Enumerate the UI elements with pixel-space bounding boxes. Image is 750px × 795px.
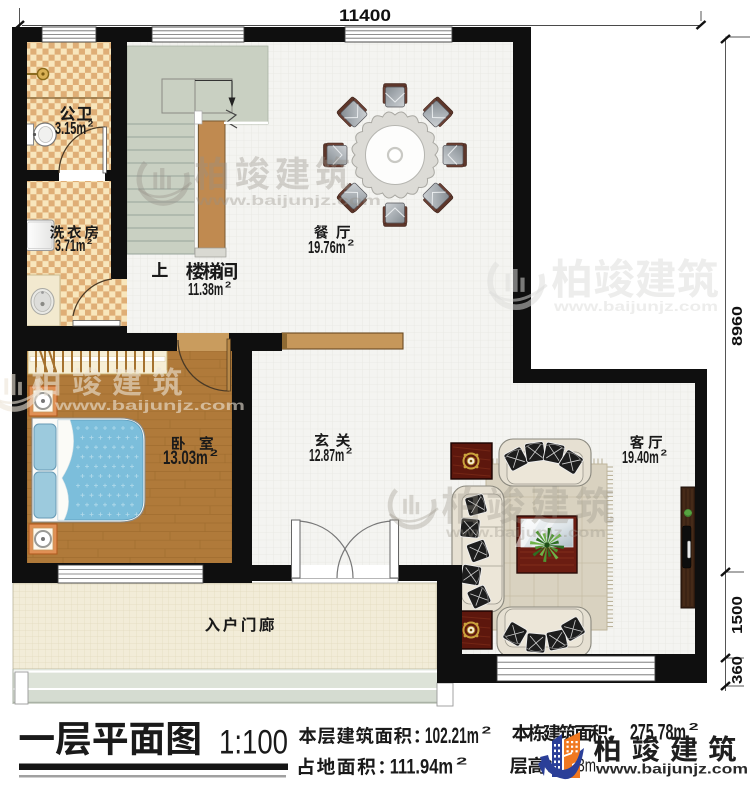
svg-text:11400: 11400 bbox=[339, 7, 391, 25]
svg-text:www.baijunjz.com: www.baijunjz.com bbox=[194, 193, 381, 208]
svg-text:12.87m: 12.87m bbox=[309, 445, 344, 465]
svg-text:8960: 8960 bbox=[729, 306, 746, 346]
svg-text:www.baijunjz.com: www.baijunjz.com bbox=[595, 762, 748, 777]
svg-text:www.baijunjz.com: www.baijunjz.com bbox=[445, 525, 606, 540]
svg-text:2: 2 bbox=[348, 238, 355, 248]
svg-text:19.40m: 19.40m bbox=[622, 447, 659, 467]
svg-text:102.21m: 102.21m bbox=[425, 723, 479, 748]
svg-text:360: 360 bbox=[729, 656, 746, 684]
svg-text:2: 2 bbox=[482, 726, 492, 737]
svg-text:19.76m: 19.76m bbox=[308, 237, 346, 257]
svg-text:2: 2 bbox=[661, 448, 668, 458]
svg-text:13.03m: 13.03m bbox=[163, 448, 208, 469]
svg-text:11.38m: 11.38m bbox=[188, 279, 223, 299]
svg-text:1500: 1500 bbox=[729, 596, 746, 634]
svg-text:111.94m: 111.94m bbox=[390, 755, 453, 779]
svg-text:2: 2 bbox=[210, 448, 218, 458]
svg-text:2: 2 bbox=[456, 757, 468, 768]
svg-text:1:100: 1:100 bbox=[219, 724, 288, 762]
svg-text:2: 2 bbox=[88, 119, 94, 129]
svg-text:2: 2 bbox=[225, 280, 232, 290]
svg-text:www.baijunjz.com: www.baijunjz.com bbox=[53, 398, 245, 413]
svg-text:2: 2 bbox=[689, 722, 699, 733]
svg-text:3.71m: 3.71m bbox=[55, 237, 85, 255]
svg-text:www.baijunjz.com: www.baijunjz.com bbox=[553, 299, 718, 314]
svg-text:2: 2 bbox=[87, 237, 92, 246]
svg-text:3.15m: 3.15m bbox=[55, 118, 86, 138]
svg-text:2: 2 bbox=[346, 446, 353, 456]
